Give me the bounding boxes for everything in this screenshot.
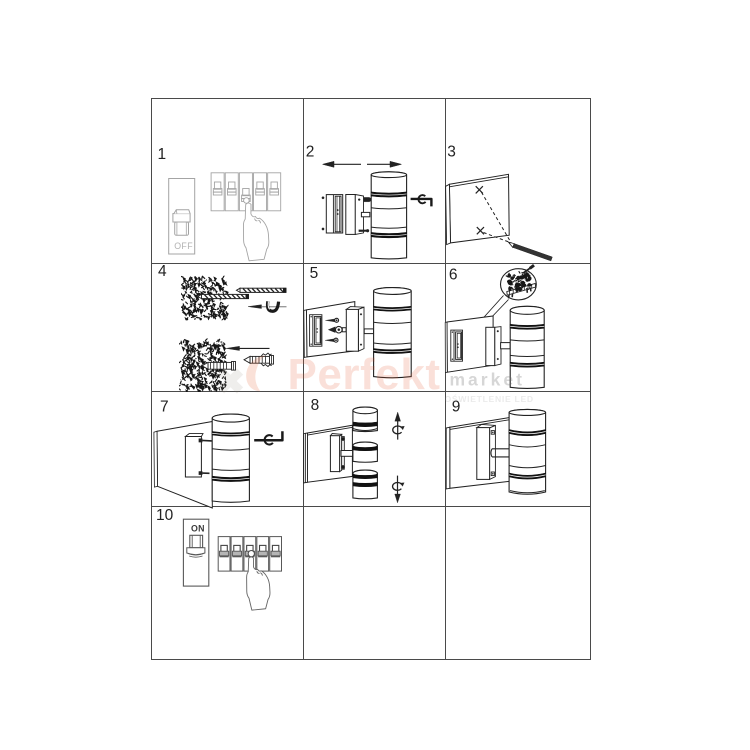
svg-text:7: 7 xyxy=(160,398,169,415)
svg-text:OFF: OFF xyxy=(174,241,193,251)
svg-text:market: market xyxy=(450,370,525,390)
svg-text:3: 3 xyxy=(447,144,456,161)
svg-text:8: 8 xyxy=(311,397,320,414)
svg-text:2: 2 xyxy=(306,144,315,161)
svg-text:4: 4 xyxy=(158,263,167,280)
svg-text:10: 10 xyxy=(156,507,174,524)
svg-text:1: 1 xyxy=(158,146,167,163)
svg-text:ON: ON xyxy=(191,524,205,534)
svg-text:6: 6 xyxy=(449,267,458,284)
svg-text:Perfekt: Perfekt xyxy=(288,350,441,399)
svg-text:OŚWIETLENIE LED: OŚWIETLENIE LED xyxy=(445,393,534,404)
svg-text:5: 5 xyxy=(310,265,319,282)
